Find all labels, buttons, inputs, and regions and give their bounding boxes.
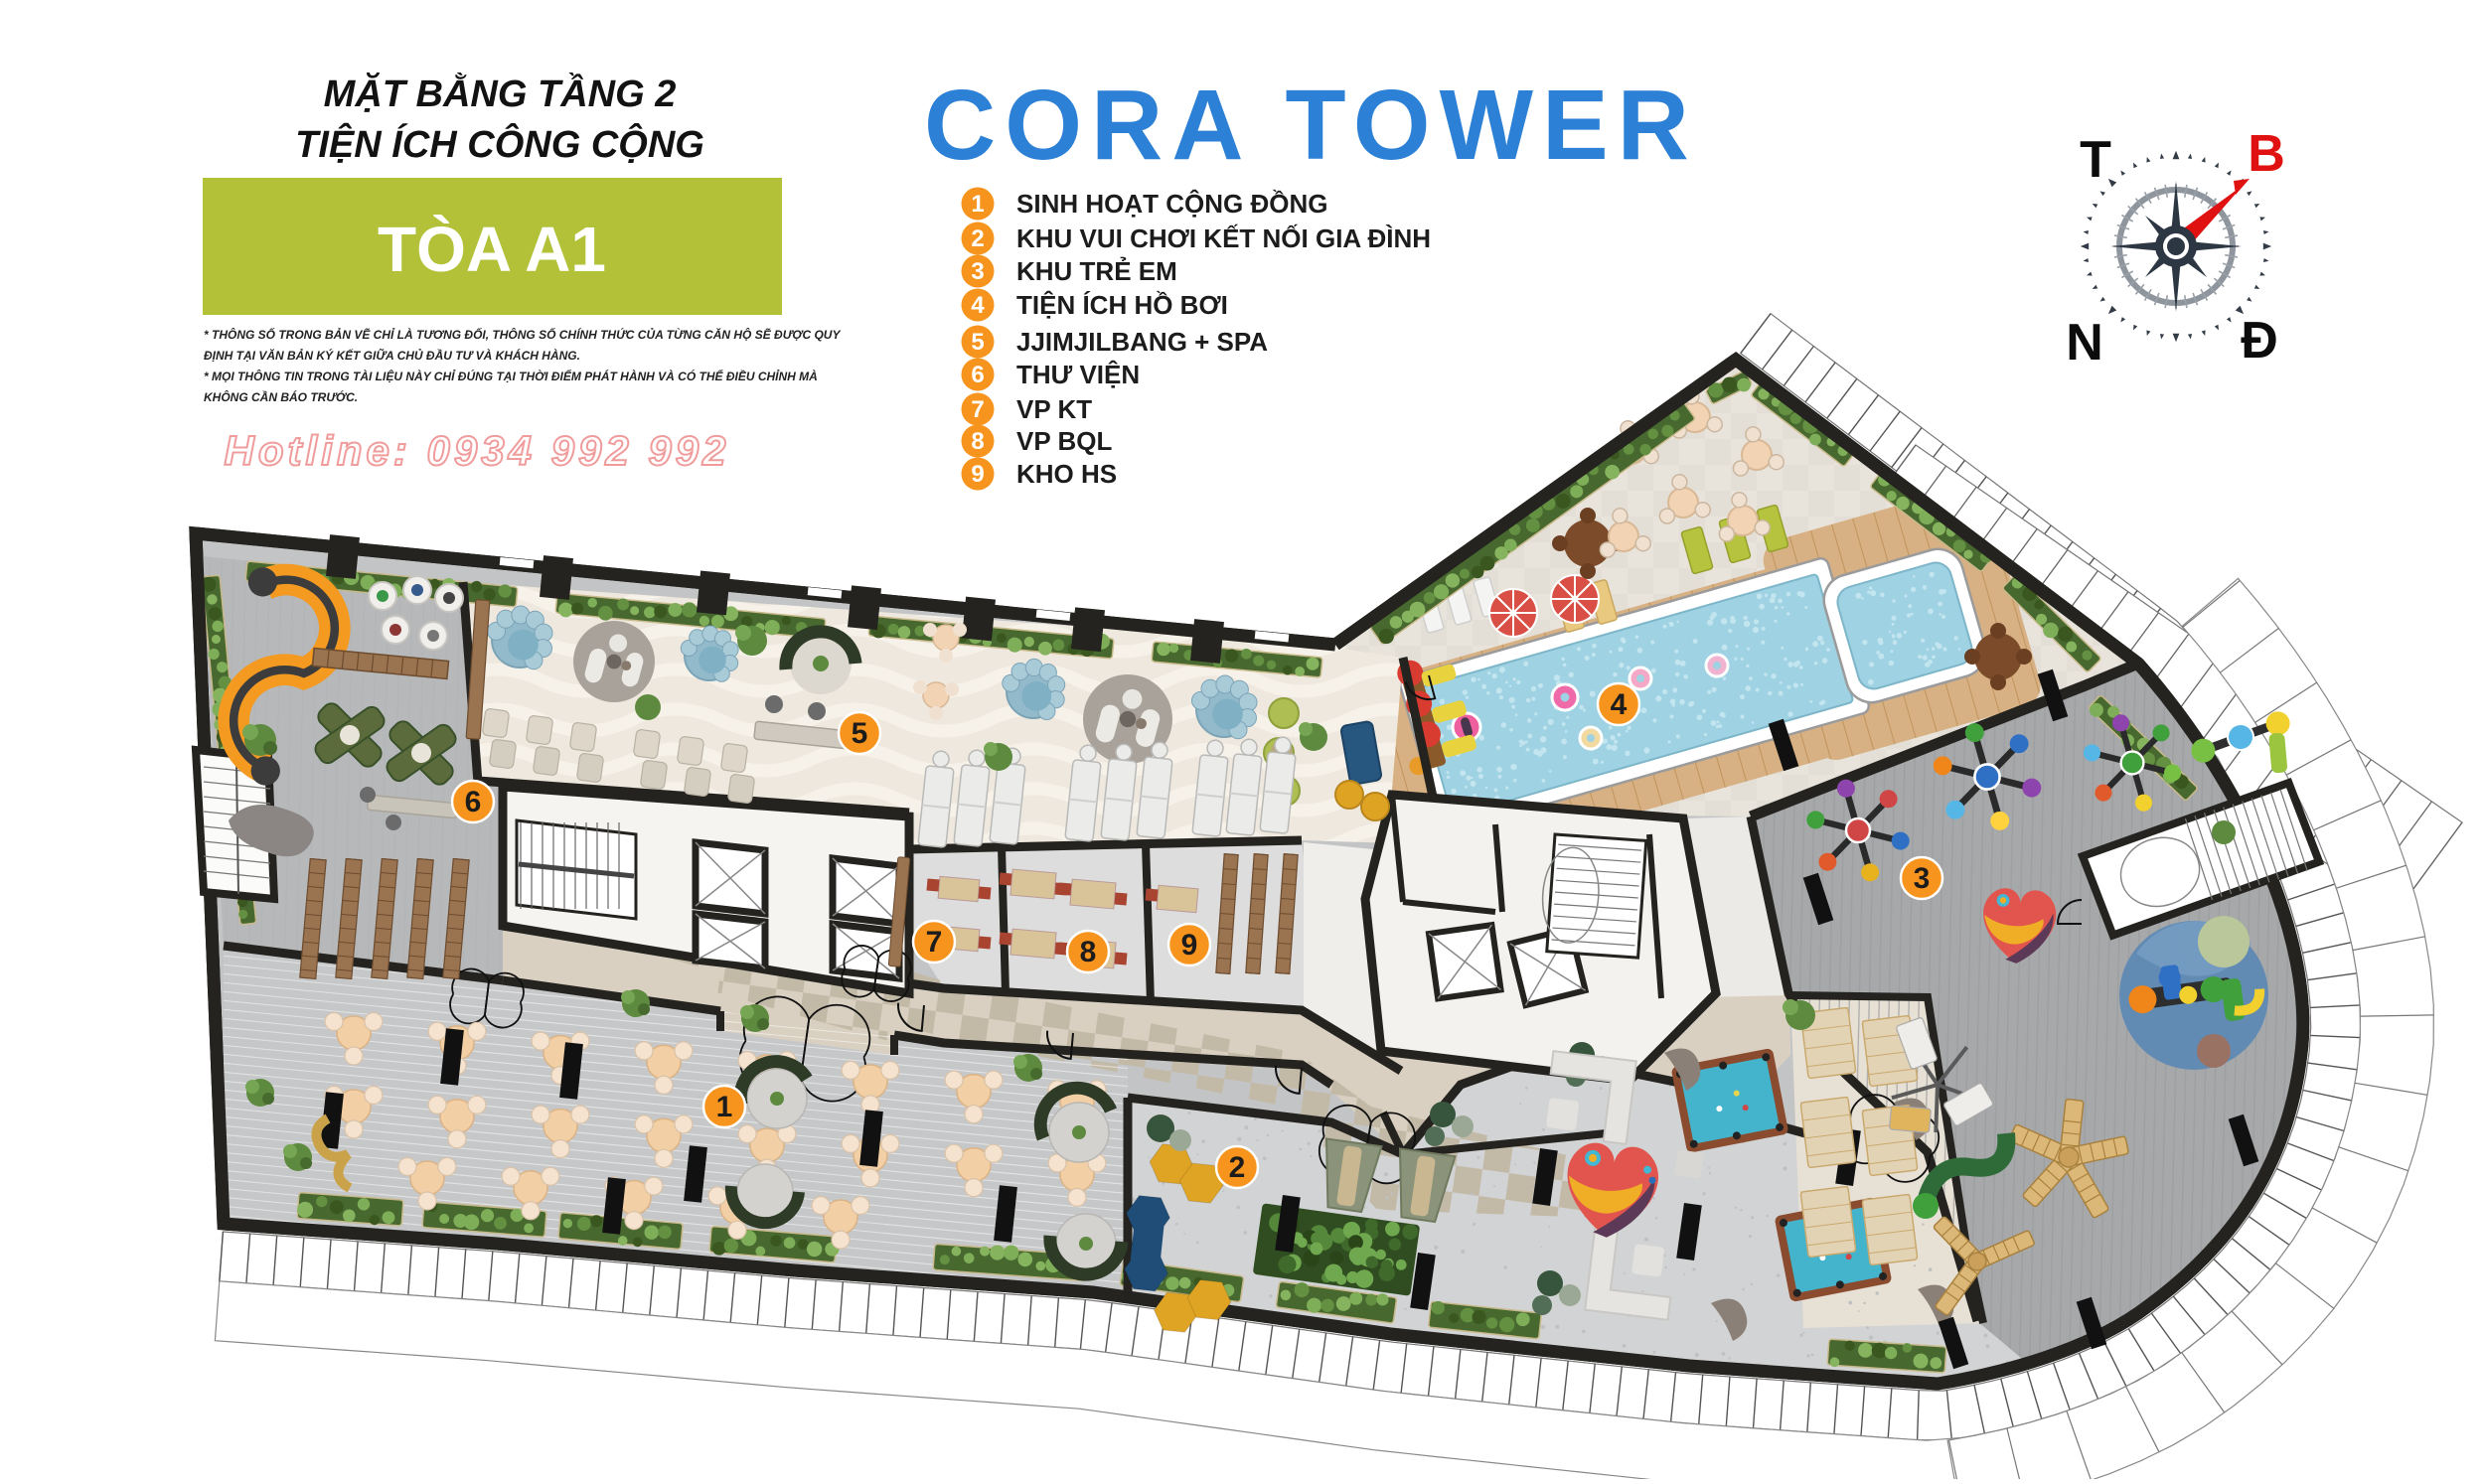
- svg-text:2: 2: [1229, 1151, 1246, 1184]
- svg-text:6: 6: [971, 362, 984, 388]
- svg-text:VP KT: VP KT: [1016, 394, 1092, 424]
- svg-text:5: 5: [971, 329, 984, 356]
- svg-text:3: 3: [971, 258, 984, 285]
- svg-text:* MỌI THÔNG TIN TRONG TÀI LIỆU: * MỌI THÔNG TIN TRONG TÀI LIỆU NÀY CHỈ Đ…: [204, 369, 818, 383]
- svg-text:Hotline: 0934 992 992: Hotline: 0934 992 992: [225, 427, 730, 474]
- svg-text:Đ: Đ: [2241, 312, 2278, 370]
- svg-text:MẶT BẰNG TẦNG 2: MẶT BẰNG TẦNG 2: [324, 72, 677, 115]
- svg-text:SINH HOẠT CỘNG ĐỒNG: SINH HOẠT CỘNG ĐỒNG: [1016, 189, 1327, 219]
- svg-text:9: 9: [971, 461, 984, 488]
- svg-text:THƯ VIỆN: THƯ VIỆN: [1016, 360, 1140, 389]
- svg-text:TÒA A1: TÒA A1: [378, 214, 606, 285]
- svg-text:7: 7: [971, 396, 984, 423]
- svg-text:4: 4: [971, 292, 985, 319]
- svg-text:* THÔNG SỐ TRONG BẢN VẼ CHỈ LÀ: * THÔNG SỐ TRONG BẢN VẼ CHỈ LÀ TƯƠNG ĐỐI…: [204, 327, 841, 342]
- svg-text:4: 4: [1611, 688, 1628, 721]
- svg-text:8: 8: [971, 428, 984, 455]
- svg-text:CORA TOWER: CORA TOWER: [924, 70, 1698, 181]
- svg-text:6: 6: [465, 786, 482, 818]
- svg-text:KHO HS: KHO HS: [1016, 459, 1117, 489]
- svg-text:ĐỊNH TẠI VĂN BẢN KÝ KẾT GIỮA: ĐỊNH TẠI VĂN BẢN KÝ KẾT GIỮA CHỦ ĐẦU TƯ …: [204, 348, 580, 363]
- svg-text:B: B: [2248, 125, 2285, 183]
- svg-text:TIỆN ÍCH CÔNG CỘNG: TIỆN ÍCH CÔNG CỘNG: [295, 121, 704, 166]
- svg-text:1: 1: [716, 1091, 733, 1123]
- svg-text:3: 3: [1914, 862, 1931, 895]
- svg-text:8: 8: [1080, 936, 1097, 968]
- svg-text:7: 7: [926, 926, 943, 959]
- svg-text:TIỆN ÍCH HỒ BƠI: TIỆN ÍCH HỒ BƠI: [1016, 290, 1228, 320]
- svg-text:JJIMJILBANG + SPA: JJIMJILBANG + SPA: [1016, 327, 1268, 357]
- svg-text:5: 5: [852, 717, 868, 750]
- svg-text:N: N: [2066, 314, 2103, 371]
- svg-text:T: T: [2080, 131, 2111, 189]
- svg-text:VP BQL: VP BQL: [1016, 426, 1112, 456]
- svg-text:1: 1: [971, 191, 984, 218]
- svg-text:9: 9: [1181, 929, 1198, 962]
- svg-text:2: 2: [971, 225, 984, 252]
- svg-text:KHU VUI CHƠI KẾT NỐI GIA ĐÌNH: KHU VUI CHƠI KẾT NỐI GIA ĐÌNH: [1016, 223, 1431, 253]
- svg-text:KHÔNG CẦN BÁO TRƯỚC.: KHÔNG CẦN BÁO TRƯỚC.: [204, 389, 358, 404]
- svg-text:KHU TRẺ EM: KHU TRẺ EM: [1016, 256, 1177, 286]
